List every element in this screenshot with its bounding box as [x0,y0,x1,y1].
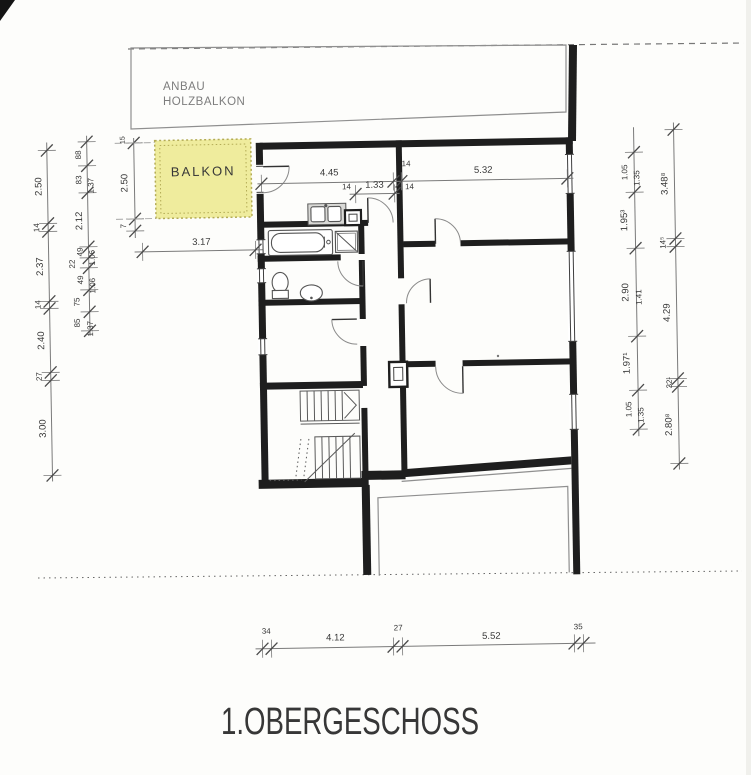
window-right-bigroom [567,251,578,341]
bigroom-door [406,279,430,303]
dim-bottom-2: 27 [394,623,404,632]
wall-top [260,137,573,149]
dim-left-inner-6: 22 [68,259,77,269]
dim-left-inner-4: 49 [75,247,84,257]
wall-corridor-left [360,346,367,386]
kitchen-duct [345,210,361,225]
dim-top-inner-14b: 14 [405,182,415,191]
storage-door [332,319,357,344]
dim-left-outer-3: 14 [33,300,42,310]
wall-left-seg [256,143,263,165]
dim-left-outer-4: 2.40 [36,331,47,350]
dim-left-inner-1: 83 [74,175,83,185]
dim-right-inner-7: 1.35 [636,407,645,423]
dim-left-outer-5: 27 [35,372,44,382]
dim-top-inner-133: 1.33 [365,180,384,191]
kitchen-hall-door [368,197,393,222]
dim-right-outer-0: 3.48⁸ [659,172,670,195]
wall-corridor-left [361,408,368,478]
dim-right-inner-5: 1.97¹ [621,352,632,374]
dim-top-532: 5.32 [474,165,493,176]
dim-left-inner-5: 1.06 [88,249,97,265]
scan-edge-artifact [746,0,751,775]
dim-left-inner-3: 2.12 [74,212,85,231]
wall-room2-bottom [463,358,573,366]
dim-top-inner-14a: 14 [342,182,352,191]
dim-bottom-0: 34 [262,627,272,636]
wall-right-seg [566,137,573,154]
section-dotted-line-bottom [38,571,742,578]
window-left-wc [257,269,266,283]
balcony: BALKON [155,139,252,219]
dim-right-inner-1: 1.35 [632,170,641,186]
dim-bottom: 34 4.12 27 5.52 35 [255,620,596,658]
dim-bottom-3: 5.52 [482,631,501,642]
dim-top-445: 4.45 [320,167,339,178]
toilet [272,272,288,298]
floorplan-drawing: ANBAU HOLZBALKON BALKON [0,0,751,775]
kitchen-sink [308,203,346,225]
room3-door [436,366,463,393]
dim-top-14: 14 [402,159,412,168]
scan-speck [497,355,499,357]
wall-bottom-stairwell [259,478,369,489]
wall-room1-bottom [460,238,570,246]
dim-balcony-317: 3.17 [192,237,211,248]
wall-right-seg [571,429,581,574]
dim-top: 4.45 14 5.32 14 1.33 14 [255,156,574,205]
dim-right-inner-4: 1.41 [634,289,643,305]
wall-right-seg [569,341,577,394]
dim-right-inner-3: 2.90 [620,283,631,302]
wall-room2-bottom [406,361,436,368]
dim-left-inner-8: 1.06 [88,277,97,293]
dim-left-inner-11: 1.37 [86,320,95,336]
anbau-label-line2: HOLZBALKON [163,96,245,108]
interior-walls [256,137,575,479]
wall-stairwell-top [260,381,363,390]
dim-left-outer-6: 3.00 [38,419,49,438]
wall-left-seg [257,194,265,240]
wall-left-seg [258,283,266,339]
staircase [268,390,361,483]
dim-bottom-1: 4.12 [326,632,345,643]
dim-left-inner-0: 88 [74,150,83,160]
dim-left-inner-9: 75 [72,297,81,307]
scan-corner-artifact [0,0,15,21]
lower-storey-outline [378,486,569,575]
dim-bottom-4: 35 [574,622,584,631]
dim-balcony-15: 15 [120,136,127,144]
wall-left-seg [259,355,268,487]
dim-right-outer-1: 14⁵ [658,237,667,249]
dim-right-inner-6: 1.05 [624,401,633,417]
dim-left-inner-2: 1.37 [86,177,95,193]
dim-left-inner-7: 49 [76,275,85,285]
dim-left-outer-0: 2.50 [33,177,44,196]
balcony-area [155,139,252,219]
fixtures [268,203,363,302]
dim-right-outer-4: 2.80⁸ [663,413,674,436]
balcony-label: BALKON [171,163,236,179]
wash-basin [300,285,322,301]
drawing-title: 1.OBERGESCHOSS [221,701,479,743]
wall-room1-bottom [403,241,435,248]
wall-stub-top-right [568,45,577,141]
dim-right: 1.05 1.35 1.95³ 2.90 1.41 1.97¹ 1.05 1.3… [617,122,688,470]
dim-left-outer-1: 14 [32,223,41,233]
dim-left-outer-2: 2.37 [35,257,46,276]
anbau-label-line1: ANBAU [163,81,205,93]
scanned-floorplan-page: ANBAU HOLZBALKON BALKON [0,0,751,775]
chimney [389,362,407,387]
window-right-room1 [565,154,575,193]
exterior-walls [253,137,581,580]
wall-bottom-right-room [401,456,571,477]
shower [335,231,357,252]
window-left-storage [258,339,267,355]
dim-left: 2.50 14 2.37 14 2.40 27 3.00 88 83 1.37 … [31,136,102,482]
dim-right-outer-2: 4.29 [662,303,673,322]
wall-lower-left [362,485,372,575]
dim-right-inner-0: 1.05 [620,164,629,180]
dim-balcony-7: 7 [119,223,128,228]
dim-right-inner-2: 1.95³ [619,209,630,231]
plan-group: BALKON [31,122,692,661]
dim-right-outer-3: 32¹ [665,376,674,388]
stair-direction-arrow [344,392,356,418]
dim-balcony-250: 2.50 [119,174,130,193]
room1-door [435,218,460,243]
dim-left-inner-10: 85 [73,318,82,328]
bathtub [268,230,332,256]
window-right-room3 [569,394,579,429]
